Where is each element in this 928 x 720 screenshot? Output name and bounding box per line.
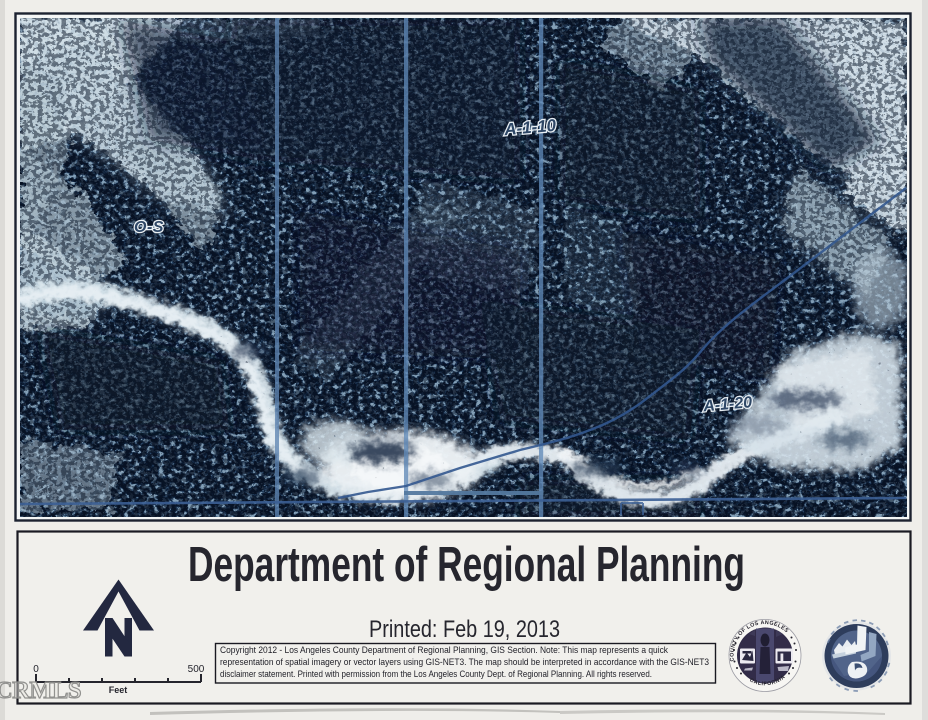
svg-text:500: 500 — [188, 664, 205, 675]
svg-text:representation of spatial imag: representation of spatial imagery or vec… — [220, 657, 709, 667]
svg-text:Feet: Feet — [109, 685, 128, 695]
svg-text:Copyright 2012 - Los Angeles C: Copyright 2012 - Los Angeles County Depa… — [220, 645, 668, 655]
svg-text:disclaimer statement. Printed: disclaimer statement. Printed with permi… — [220, 669, 652, 679]
svg-text:Printed: Feb 19, 2013: Printed: Feb 19, 2013 — [369, 616, 560, 643]
svg-text:0: 0 — [33, 664, 39, 675]
svg-text:O-S: O-S — [134, 219, 164, 236]
svg-text:CRMLS: CRMLS — [0, 677, 81, 704]
svg-text:Department of Regional Plannin: Department of Regional Planning — [188, 538, 745, 592]
